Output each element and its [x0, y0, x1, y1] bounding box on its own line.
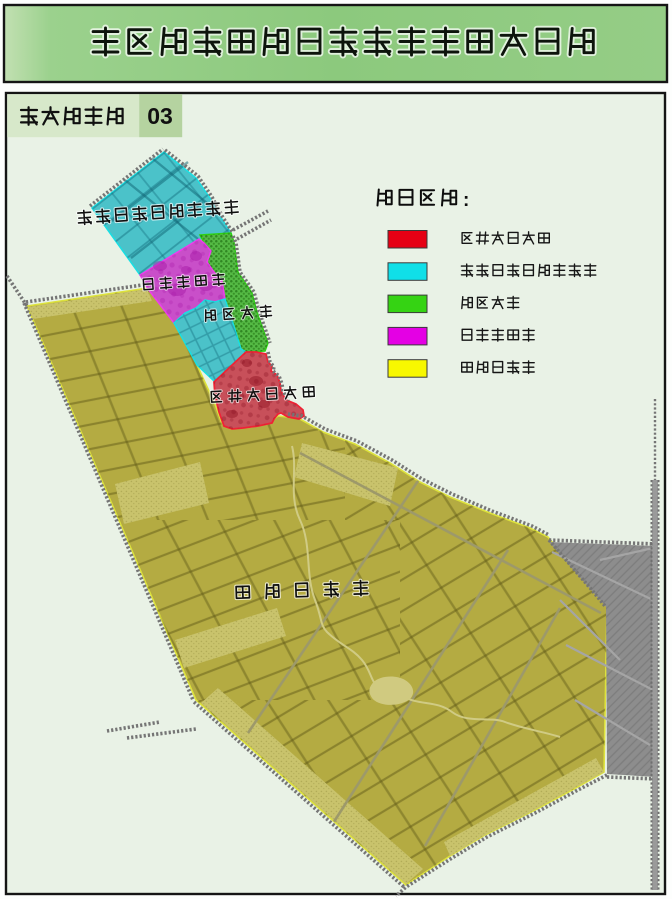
- svg-text::: :: [463, 190, 469, 211]
- svg-text:03: 03: [147, 103, 173, 129]
